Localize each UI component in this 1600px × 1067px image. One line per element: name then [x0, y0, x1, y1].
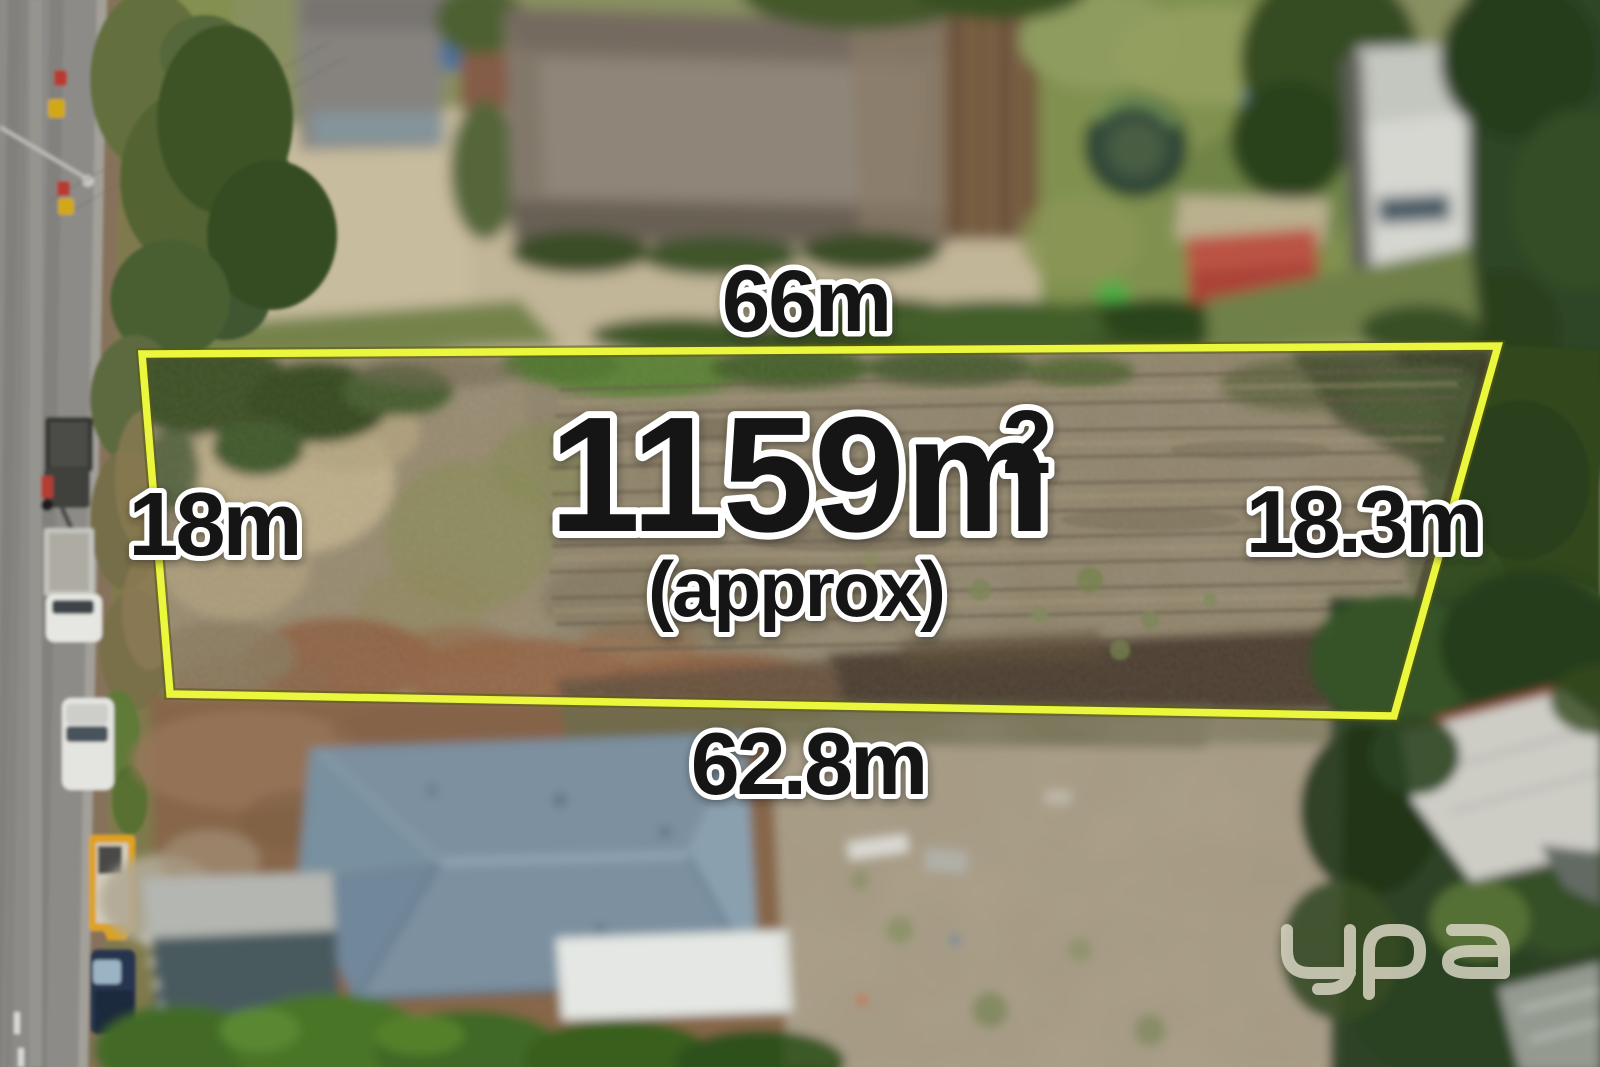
svg-text:18m: 18m [128, 475, 299, 575]
svg-text:1159m: 1159m [549, 383, 1051, 566]
svg-text:66m: 66m [722, 253, 890, 350]
svg-text:2: 2 [1002, 393, 1050, 493]
svg-text:18.3m: 18.3m [1246, 472, 1481, 571]
svg-text:62.8m: 62.8m [691, 714, 926, 813]
svg-text:(approx): (approx) [648, 545, 944, 633]
